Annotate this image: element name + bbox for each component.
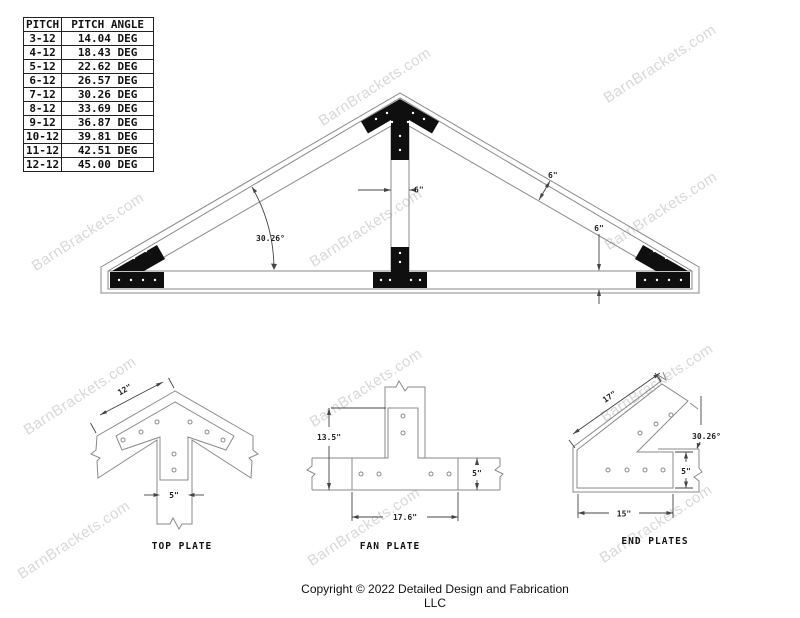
fan-plate-label: FAN PLATE [360,541,420,552]
top-plate-dimensions: 12" 5" [91,378,205,500]
end-plates-width-dim: 15" [617,510,631,519]
table-row: 8-1233.69 DEG [24,102,154,116]
fan-plate-height-dim: 13.5" [317,433,341,442]
pitch-table-header-angle: PITCH ANGLE [62,18,154,32]
left-rafter-bottom-edge [140,126,391,271]
right-rafter-bottom-edge [409,126,660,271]
copyright-text: Copyright © 2022 Detailed Design and Fab… [295,582,575,610]
fan-plate-outline [352,408,458,490]
right-heel-bracket [635,245,690,288]
rafter-depth-dim: 6" [548,171,558,180]
table-row: 3-1214.04 DEG [24,32,154,46]
end-plates-outline [577,384,688,488]
table-row: 7-1230.26 DEG [24,88,154,102]
top-plate-stem-dim: 5" [169,491,179,500]
pitch-table-header-pitch: PITCH [24,18,62,32]
table-row: 10-1239.81 DEG [24,130,154,144]
truss-dimensions: 6" 6" 6" 30.26° [252,171,604,304]
end-plates-edge-dim: 17" [601,389,618,405]
left-heel-bracket [110,245,165,288]
post-width-dim: 6" [414,186,424,195]
fan-plate-post-outline [385,381,425,458]
fan-plate-dimensions: 13.5" 5" 17.6" [317,408,482,522]
pitch-angle-dim: 30.26° [256,234,285,243]
end-plates-dimensions: 17" 30.26° 5" [569,373,721,519]
table-row: 5-1222.62 DEG [24,60,154,74]
fan-plate-detail: 13.5" 5" 17.6" FAN PLATE [307,381,503,552]
top-plate-edge-dim: 12" [116,382,133,397]
fan-plate-depth-dim: 5" [472,469,482,478]
table-row: 12-1245.00 DEG [24,158,154,172]
top-plate-label: TOP PLATE [152,541,212,552]
top-plate-timber-outline [91,391,258,529]
drawing-page: BarnBrackets.com BarnBrackets.com BarnBr… [0,0,800,618]
table-row: 9-1236.87 DEG [24,116,154,130]
end-plates-depth-dim: 5" [681,467,691,476]
peak-bracket [361,99,439,160]
pitch-angle-table: PITCH PITCH ANGLE 3-1214.04 DEG 4-1218.4… [23,17,154,172]
table-row: 6-1226.57 DEG [24,74,154,88]
center-t-bracket [373,247,427,288]
end-plates-detail: 17" 30.26° 5" [569,372,721,547]
table-row: 4-1218.43 DEG [24,46,154,60]
truss-elevation: 6" 6" 6" 30.26° [101,93,699,304]
fan-plate-width-dim: 17.6" [393,513,417,522]
table-row: 11-1242.51 DEG [24,144,154,158]
top-plate-detail: 12" 5" TOP PLATE [91,378,259,552]
end-plates-angle-dim: 30.26° [692,432,721,441]
end-plates-label: END PLATES [621,536,688,547]
chord-depth-dim: 6" [594,224,604,233]
